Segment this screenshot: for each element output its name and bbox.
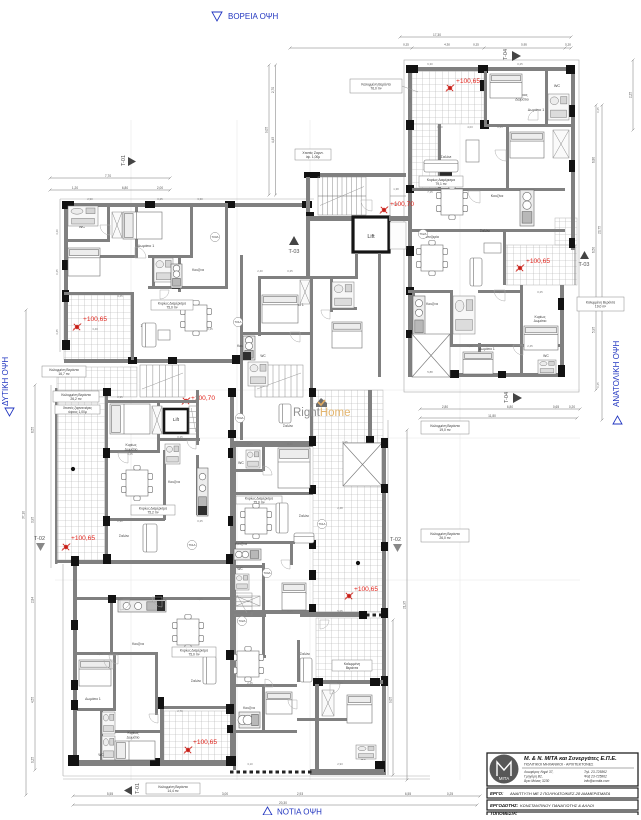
svg-text:5,05: 5,05 — [337, 609, 343, 613]
svg-text:T-02: T-02 — [390, 537, 401, 543]
svg-text:Μ. & Ν. ΜΙΤΑ και Συνεργάτες Ε.: Μ. & Ν. ΜΙΤΑ και Συνεργάτες Ε.Π.Ε. — [524, 756, 617, 762]
svg-text:0,25: 0,25 — [408, 157, 412, 163]
svg-text:2,00: 2,00 — [157, 186, 163, 190]
svg-text:2,70: 2,70 — [177, 709, 183, 713]
svg-text:ύψους 1,00μ: ύψους 1,00μ — [68, 410, 87, 414]
svg-text:0,25: 0,25 — [342, 440, 348, 444]
svg-text:0,25: 0,25 — [177, 435, 183, 439]
svg-text:0,25: 0,25 — [517, 62, 523, 66]
svg-text:Κουζίνα: Κουζίνα — [235, 542, 247, 546]
svg-text:5,55: 5,55 — [107, 792, 113, 796]
svg-text:702Α: 702Α — [238, 619, 245, 623]
svg-text:3,20: 3,20 — [55, 229, 59, 235]
svg-text:T-01: T-01 — [121, 155, 127, 166]
svg-text:1,38: 1,38 — [393, 187, 399, 191]
svg-text:704Α: 704Α — [263, 571, 270, 575]
svg-text:Κουζίνα: Κουζίνα — [192, 268, 204, 272]
svg-text:75,0 m²: 75,0 m² — [166, 305, 178, 309]
svg-text:Σαλόνι: Σαλόνι — [299, 514, 309, 518]
svg-text:ΕΡΓΟ:: ΕΡΓΟ: — [490, 791, 504, 796]
svg-text:Δωμάτιο: Δωμάτιο — [125, 448, 138, 452]
svg-text:6,80: 6,80 — [507, 405, 513, 409]
svg-text:0,25: 0,25 — [497, 125, 503, 129]
svg-text:2,45: 2,45 — [247, 442, 253, 446]
svg-text:701Α: 701Α — [234, 320, 241, 324]
svg-text:0,25: 0,25 — [207, 327, 213, 331]
svg-text:ΕΡΓΟΔΟΤΗΣ:: ΕΡΓΟΔΟΤΗΣ: — [490, 803, 519, 808]
svg-text:0,25: 0,25 — [403, 43, 409, 47]
svg-text:6,50: 6,50 — [592, 247, 596, 253]
svg-text:37,10: 37,10 — [22, 511, 26, 519]
svg-text:+100,65: +100,65 — [83, 316, 107, 323]
svg-text:19,0 m²: 19,0 m² — [439, 428, 451, 432]
svg-text:20,30: 20,30 — [279, 801, 287, 805]
svg-text:1,05: 1,05 — [197, 597, 203, 601]
svg-text:762Α: 762Α — [419, 232, 426, 236]
svg-text:19,0 m²: 19,0 m² — [595, 304, 607, 308]
svg-text:+100,65: +100,65 — [193, 739, 217, 746]
svg-text:76,0 m²: 76,0 m² — [370, 86, 382, 90]
svg-text:Σαλόνι: Σαλόνι — [441, 155, 452, 159]
svg-text:0,20: 0,20 — [437, 125, 443, 129]
svg-text:79,1 m²: 79,1 m² — [435, 182, 447, 186]
svg-text:2,93: 2,93 — [337, 762, 343, 766]
svg-text:WC: WC — [543, 354, 549, 358]
svg-text:3,45: 3,45 — [117, 294, 123, 298]
svg-text:2,48: 2,48 — [247, 609, 253, 613]
svg-text:3,05: 3,05 — [127, 452, 133, 456]
svg-text:Φαξ 23-725862: Φαξ 23-725862 — [584, 775, 607, 779]
svg-text:T-03: T-03 — [578, 262, 589, 268]
svg-text:Δωμάτιο 1: Δωμάτιο 1 — [85, 697, 101, 701]
svg-text:2,48: 2,48 — [337, 506, 343, 510]
svg-text:2,95: 2,95 — [117, 395, 123, 399]
svg-text:+100,65: +100,65 — [456, 78, 480, 85]
svg-text:T-03: T-03 — [288, 249, 299, 255]
svg-text:6,80: 6,80 — [122, 186, 128, 190]
svg-text:Σαλόνι: Σαλόνι — [283, 424, 293, 428]
svg-text:0,65: 0,65 — [553, 405, 559, 409]
svg-text:9,05: 9,05 — [265, 127, 269, 133]
svg-text:0,25: 0,25 — [157, 197, 163, 201]
svg-text:11,80: 11,80 — [488, 414, 496, 418]
svg-text:0,25: 0,25 — [287, 269, 293, 273]
svg-text:Κουζίνα: Κουζίνα — [491, 194, 504, 198]
svg-text:3,30: 3,30 — [197, 197, 203, 201]
svg-text:Δωμάτιο: Δωμάτιο — [127, 736, 140, 740]
svg-text:Δωμάτιο 1: Δωμάτιο 1 — [138, 244, 155, 248]
svg-text:7,15: 7,15 — [427, 190, 433, 194]
svg-text:0,25: 0,25 — [55, 269, 59, 275]
svg-text:2,70: 2,70 — [271, 87, 275, 93]
svg-text:75,0 m²: 75,0 m² — [188, 652, 200, 656]
svg-text:21,95: 21,95 — [403, 601, 407, 609]
svg-text:5,95: 5,95 — [592, 327, 596, 333]
svg-text:Κουζίνα: Κουζίνα — [132, 642, 144, 646]
svg-text:5,20: 5,20 — [565, 43, 571, 47]
svg-text:7,70: 7,70 — [105, 174, 111, 178]
svg-text:ΑΝΑΠΤΥΞΗ ΜΕ 2 ΠΟΛΥΚΑΤΟΙΚΙΕΣ-28: ΑΝΑΠΤΥΞΗ ΜΕ 2 ΠΟΛΥΚΑΤΟΙΚΙΕΣ-28 ΔΙΑΜΕΡΙΣΜ… — [509, 791, 611, 796]
svg-text:0,25: 0,25 — [31, 757, 35, 763]
svg-text:ΤΟΠΟΘΕΣΙΑ:: ΤΟΠΟΘΕΣΙΑ: — [490, 811, 518, 815]
svg-text:Σαλόνι: Σαλόνι — [300, 652, 310, 656]
svg-text:2,45: 2,45 — [527, 344, 533, 348]
svg-text:0,25: 0,25 — [596, 107, 600, 113]
svg-text:5,88: 5,88 — [427, 370, 433, 374]
svg-text:3,00: 3,00 — [222, 792, 228, 796]
svg-text:0,60: 0,60 — [287, 442, 293, 446]
svg-text:4,45: 4,45 — [271, 137, 275, 143]
svg-text:Κυρίως: Κυρίως — [125, 443, 136, 447]
svg-text:Σαλόνι: Σαλόνι — [191, 679, 201, 683]
svg-text:3,95: 3,95 — [31, 517, 35, 523]
svg-text:WC: WC — [554, 84, 561, 88]
svg-text:+100,65: +100,65 — [354, 586, 378, 593]
svg-text:Lift: Lift — [173, 417, 180, 422]
svg-text:6,30: 6,30 — [427, 62, 433, 66]
svg-text:+100,65: +100,65 — [526, 258, 550, 265]
svg-text:2,70: 2,70 — [97, 652, 103, 656]
svg-text:5,88: 5,88 — [467, 344, 473, 348]
svg-text:0,25: 0,25 — [447, 792, 453, 796]
svg-text:1,20: 1,20 — [72, 186, 78, 190]
svg-text:Κουζίνα: Κουζίνα — [168, 480, 180, 484]
svg-text:0,25: 0,25 — [596, 382, 600, 388]
svg-text:3,28: 3,28 — [117, 597, 123, 601]
svg-text:WC: WC — [98, 753, 104, 757]
svg-text:5,95: 5,95 — [521, 43, 527, 47]
svg-text:0,25: 0,25 — [537, 290, 543, 294]
svg-text:3,45: 3,45 — [55, 329, 59, 335]
svg-text:0,25: 0,25 — [197, 519, 203, 523]
svg-text:ΒΟΡΕΙΑ ΟΨΗ: ΒΟΡΕΙΑ ΟΨΗ — [228, 12, 278, 21]
svg-text:4,30: 4,30 — [444, 43, 450, 47]
svg-text:4,03: 4,03 — [467, 125, 473, 129]
svg-text:0,25: 0,25 — [473, 43, 479, 47]
svg-text:WC: WC — [238, 461, 244, 465]
svg-text:ΑΝΑΤΟΛΙΚΗ ΟΨΗ: ΑΝΑΤΟΛΙΚΗ ΟΨΗ — [612, 341, 621, 407]
svg-text:3,40: 3,40 — [92, 327, 98, 331]
svg-text:8,55: 8,55 — [31, 427, 35, 433]
svg-text:+100,70: +100,70 — [390, 201, 414, 208]
svg-text:Δωμάτιο: Δωμάτιο — [534, 319, 547, 323]
svg-text:704Α: 704Α — [236, 416, 243, 420]
svg-text:9,05: 9,05 — [389, 697, 393, 703]
svg-text:2,40: 2,40 — [257, 269, 263, 273]
svg-text:4,55: 4,55 — [31, 697, 35, 703]
svg-text:2,90: 2,90 — [87, 197, 93, 201]
svg-text:2,93: 2,93 — [297, 792, 303, 796]
svg-text:Γρηγόρη Β2,: Γρηγόρη Β2, — [524, 775, 543, 779]
svg-text:23,75: 23,75 — [598, 226, 602, 234]
svg-text:3,10: 3,10 — [247, 762, 253, 766]
svg-text:RightHome: RightHome — [293, 407, 351, 419]
svg-text:17,30: 17,30 — [433, 33, 441, 37]
svg-text:ΜΙΤΑ: ΜΙΤΑ — [499, 776, 509, 781]
svg-text:2,84: 2,84 — [31, 597, 35, 603]
svg-text:T-01: T-01 — [135, 783, 141, 794]
svg-text:0,25: 0,25 — [287, 609, 293, 613]
svg-text:Σαλόνι: Σαλόνι — [119, 534, 129, 538]
svg-text:Κουζίνα: Κουζίνα — [426, 302, 438, 306]
svg-text:Κουζίνα: Κουζίνα — [243, 706, 255, 710]
svg-text:Lift: Lift — [367, 234, 375, 240]
svg-text:6,55: 6,55 — [405, 792, 411, 796]
svg-text:Τηλ. 23-725862: Τηλ. 23-725862 — [584, 770, 607, 774]
svg-text:T-02: T-02 — [34, 536, 45, 542]
svg-text:ΠΟΛΙΤΙΚΟΙ ΜΗΧΑΝΙΚΟΙ - ΑΡΧΙΤΕΚΤ: ΠΟΛΙΤΙΚΟΙ ΜΗΧΑΝΙΚΟΙ - ΑΡΧΙΤΕΚΤΟΝΕΣ — [524, 763, 594, 767]
svg-text:761Α: 761Α — [188, 543, 195, 547]
svg-text:Λεωφόρος Νηρέ 37,: Λεωφόρος Νηρέ 37, — [523, 770, 554, 774]
svg-text:3,08: 3,08 — [408, 97, 412, 103]
svg-text:16,7 m²: 16,7 m² — [58, 372, 70, 376]
svg-text:0,20: 0,20 — [569, 405, 575, 409]
svg-text:ΔΥΤΙΚΗ ΟΨΗ: ΔΥΤΙΚΗ ΟΨΗ — [1, 357, 10, 406]
svg-text:info@svmita.com: info@svmita.com — [584, 779, 610, 783]
svg-text:2,80: 2,80 — [442, 405, 448, 409]
svg-text:26,2 m²: 26,2 m² — [70, 397, 82, 401]
svg-text:26,0 m²: 26,0 m² — [439, 536, 451, 540]
svg-text:T-04: T-04 — [504, 392, 510, 403]
svg-text:T-04: T-04 — [503, 49, 509, 60]
svg-text:2,90: 2,90 — [117, 519, 123, 523]
svg-text:2,45: 2,45 — [247, 681, 253, 685]
svg-text:Άγιο Μόνας 3230: Άγιο Μόνας 3230 — [523, 779, 549, 783]
svg-text:ΚΩΝΣΤΑΝΤΙΝΟΥ ΠΑΝΑΓΙΩΤΗΣ & ΑΛΛΟ: ΚΩΝΣΤΑΝΤΙΝΟΥ ΠΑΝΑΓΙΩΤΗΣ & ΑΛΛΟΙ — [520, 803, 595, 808]
svg-text:14,4 m²: 14,4 m² — [167, 789, 179, 793]
svg-text:2,25: 2,25 — [629, 92, 633, 98]
svg-text:Βεράντα: Βεράντα — [346, 666, 358, 670]
svg-text:+100,65: +100,65 — [71, 535, 95, 542]
svg-text:761Α: 761Α — [318, 522, 325, 526]
svg-text:6,80: 6,80 — [592, 157, 596, 163]
svg-text:Σαλόνι: Σαλόνι — [480, 229, 490, 233]
svg-text:WC: WC — [260, 354, 266, 358]
svg-text:Δωμάτιο 1: Δωμάτιο 1 — [479, 347, 495, 351]
svg-text:WC: WC — [237, 567, 243, 571]
svg-text:75,2 m²: 75,2 m² — [147, 510, 159, 514]
svg-text:ΝΟΤΙΑ ΟΨΗ: ΝΟΤΙΑ ΟΨΗ — [277, 808, 322, 816]
svg-text:2,40: 2,40 — [497, 290, 503, 294]
svg-text:Κυρίως: Κυρίως — [127, 731, 138, 735]
svg-text:ύψ. 1,00μ: ύψ. 1,00μ — [306, 155, 320, 159]
svg-text:5,05: 5,05 — [337, 681, 343, 685]
svg-text:703Α: 703Α — [211, 235, 218, 239]
